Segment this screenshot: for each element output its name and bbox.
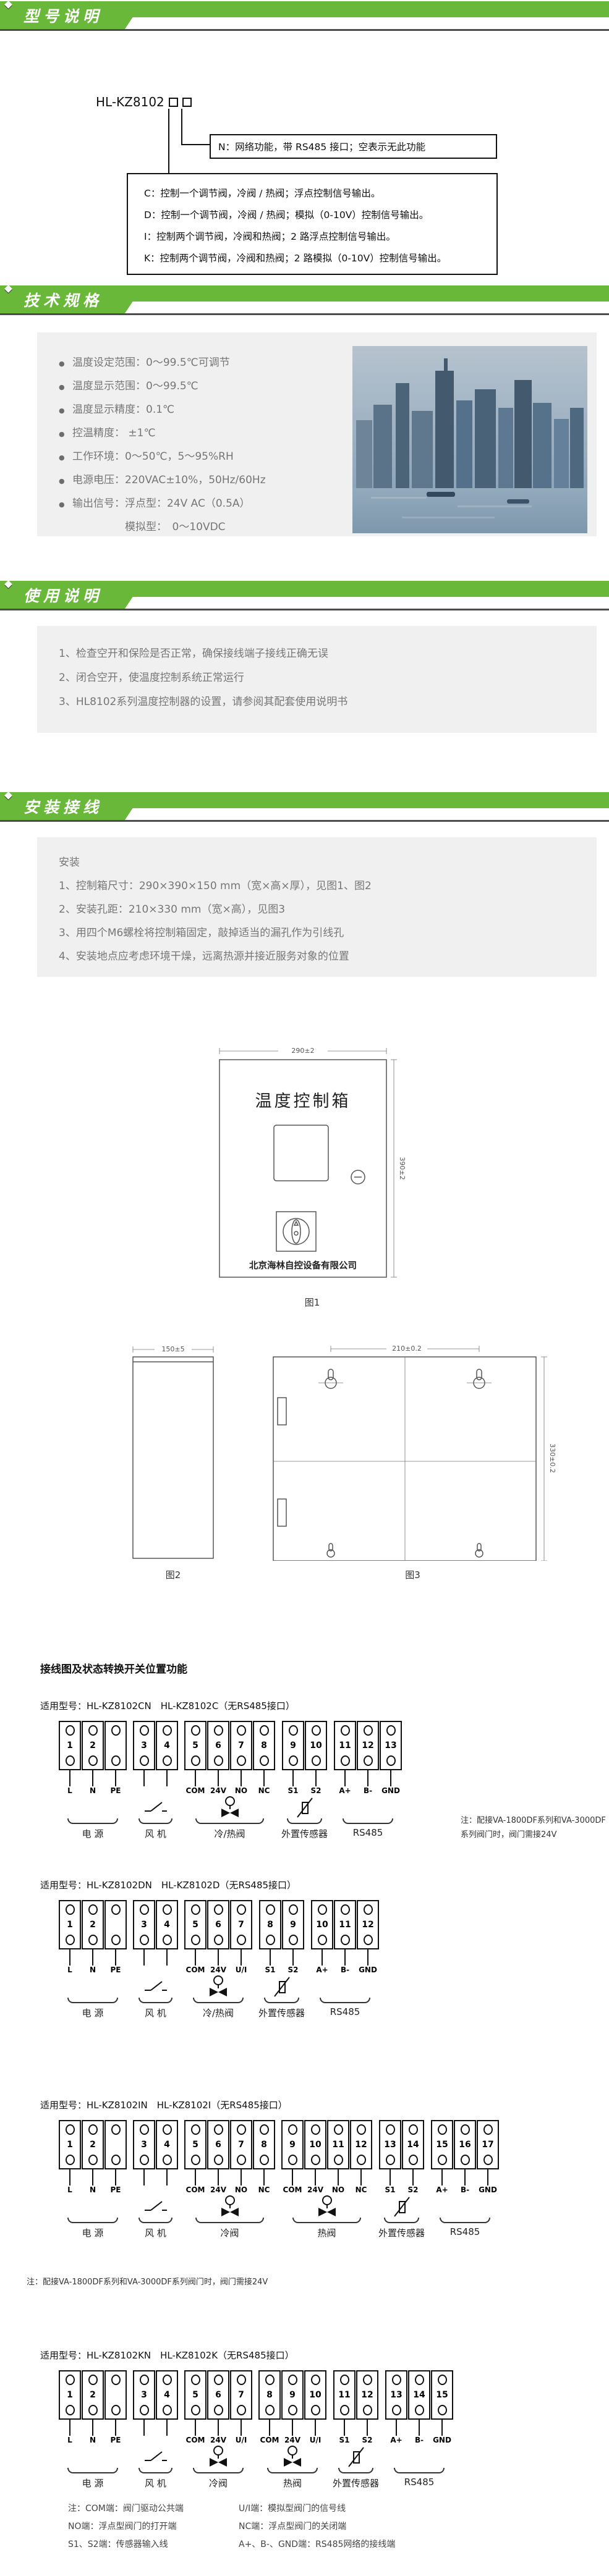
group-bracket — [138, 2218, 172, 2223]
wire-label: NO — [230, 2185, 252, 2195]
screw-hole — [111, 2375, 121, 2385]
terminal-cell: 9 — [281, 2120, 304, 2169]
wire-lead: S2 — [282, 1949, 304, 1975]
terminal-number: 13 — [385, 1741, 396, 1750]
wire-line — [218, 2420, 219, 2436]
terminal-cell: 7 — [230, 2120, 252, 2169]
terminal-cell: 11 — [334, 1721, 356, 1770]
terminal-cell: 13 — [379, 2120, 401, 2169]
terminal-cell: 6 — [207, 2370, 229, 2420]
header-shadow — [0, 820, 609, 822]
screw-hole — [288, 2405, 297, 2415]
spec-text: 电源电压：220VAC±10%，50Hz/60Hz — [72, 471, 266, 486]
wire-lead — [133, 2169, 155, 2195]
screw-hole — [191, 2155, 200, 2165]
wire-lead — [156, 2169, 178, 2195]
screw-hole — [88, 2405, 98, 2415]
screw-hole — [66, 2375, 75, 2385]
screw-hole — [288, 2155, 297, 2165]
terminal-number: 13 — [384, 2140, 396, 2149]
wire-line — [115, 2169, 116, 2185]
terminal-cell: 5 — [184, 1721, 207, 1770]
screw-hole — [191, 2124, 200, 2135]
figure-caption: 图3 — [266, 1568, 560, 1581]
figure-3-back-view: 210±0.2 — [266, 1341, 560, 1581]
screw-hole — [392, 2375, 401, 2385]
terminal-number: 6 — [215, 1741, 221, 1750]
wire-lead: A+ — [431, 2169, 453, 2195]
group-bracket — [320, 1998, 371, 2003]
wire-line — [166, 1949, 168, 1966]
spec-text: 工作环境：0～50℃，5～95%RH — [72, 447, 234, 463]
terminal-number: 13 — [390, 2391, 402, 2399]
wire-label: NO — [327, 2185, 349, 2195]
screw-hole — [409, 2155, 418, 2165]
terminal-number: 9 — [290, 1920, 296, 1929]
spec-text: 输出信号：浮点型：24V AC（0.5A） — [72, 494, 250, 510]
group-bracket — [440, 2218, 491, 2223]
wire-line — [292, 1770, 294, 1786]
wire-lead: 24V — [207, 2420, 229, 2446]
city-skyline-photo — [352, 346, 587, 533]
screw-hole — [66, 1904, 75, 1915]
screw-hole — [237, 1755, 246, 1766]
section-title: 型号说明 — [23, 4, 103, 27]
wire-lead: NC — [253, 2169, 275, 2195]
screw-hole — [438, 2375, 447, 2385]
group-name: 电 源 — [82, 2006, 104, 2019]
wire-line — [69, 1770, 70, 1786]
terminal-number: 16 — [459, 2140, 471, 2149]
wire-lead: PE — [104, 1949, 127, 1975]
screw-hole — [88, 1755, 98, 1766]
terminal-group: 8 9 10 — [258, 2370, 326, 2489]
valve-icon — [219, 1796, 241, 1818]
terminal-number: 4 — [164, 2391, 170, 2399]
group-name: 风 机 — [145, 2226, 166, 2239]
screw-hole — [340, 2375, 349, 2385]
screw-hole — [409, 2124, 418, 2135]
terminal-cell: 6 — [207, 1900, 229, 1949]
terminal-number: 5 — [192, 2140, 198, 2149]
group-name: 冷阀 — [220, 2226, 239, 2239]
group-name: 电 源 — [82, 2477, 104, 2489]
terminal-number: 4 — [164, 2140, 170, 2149]
terminal-number: 6 — [215, 2391, 221, 2399]
wire-label: A+ — [311, 1966, 333, 1975]
wiring-diagram-4: 适用型号：HL-KZ8102KN HL-KZ8102K（无RS485接口） 1 … — [40, 2349, 609, 2489]
wiring-diagram-3: 适用型号：HL-KZ8102IN HL-KZ8102I（无RS485接口） 1 … — [40, 2098, 609, 2289]
terminal-group: 13 14 S1 — [378, 2120, 425, 2239]
group-bracket — [195, 1818, 263, 1824]
terminal-number: 9 — [289, 2391, 296, 2399]
screw-hole — [88, 1904, 98, 1915]
wire-lead: L — [59, 2169, 81, 2195]
screw-hole — [364, 1725, 373, 1736]
screw-hole — [163, 2375, 172, 2385]
screw-hole — [214, 1755, 223, 1766]
wire-label: A+ — [385, 2436, 407, 2446]
terminal-cell: 11 — [334, 1900, 356, 1949]
wire-line — [367, 2420, 368, 2436]
screw-hole — [311, 2375, 320, 2385]
wire-line — [344, 1770, 346, 1786]
terminal-number: 14 — [413, 2391, 425, 2399]
wire-line — [143, 2420, 145, 2436]
wire-label: NC — [350, 2185, 372, 2195]
screw-hole — [237, 1725, 246, 1736]
terminal-number: 6 — [215, 1920, 221, 1929]
wire-line — [69, 2169, 70, 2185]
wire-label: S2 — [282, 1966, 304, 1975]
screw-hole — [111, 2155, 121, 2165]
group-name: 电 源 — [82, 2226, 104, 2239]
screw-hole — [237, 2405, 246, 2415]
terminal-group: 1 2 — [59, 2120, 127, 2239]
screw-hole — [237, 2155, 246, 2165]
wire-lead: N — [82, 1770, 104, 1796]
terminal-group: 8 9 S1 — [258, 1900, 305, 2019]
terminal-cell: 4 — [156, 2120, 178, 2169]
screw-hole — [341, 1904, 350, 1915]
terminal-cell: 3 — [133, 1721, 155, 1770]
terminal-cell: 4 — [156, 1900, 178, 1949]
wire-label: 24V — [207, 2185, 229, 2195]
wire-line — [166, 2169, 168, 2185]
wire-lead: N — [82, 2420, 104, 2446]
valve-options-box: C：控制一个调节阀，冷阀 / 热阀；浮点控制信号输出。D：控制一个调节阀，冷阀 … — [127, 173, 498, 275]
group-name: 电 源 — [82, 1827, 104, 1840]
terminal-number: 10 — [316, 1920, 328, 1929]
screw-hole — [214, 1904, 223, 1915]
wire-line — [390, 2169, 391, 2185]
terminal-group: 15 16 17 — [431, 2120, 499, 2237]
group-bracket — [343, 1818, 394, 1824]
wire-line — [412, 2169, 414, 2185]
screw-hole — [88, 2375, 98, 2385]
terminal-cell: 1 — [59, 2370, 81, 2420]
connector-line — [168, 109, 169, 174]
wire-lead: S1 — [259, 1949, 281, 1975]
terminal-number: 12 — [362, 1741, 373, 1750]
terminal-number: 9 — [289, 2140, 296, 2149]
wire-line — [367, 1949, 368, 1966]
wire-label: B- — [454, 2185, 476, 2195]
valve-option-line: K：控制两个调节阀，冷阀和热阀；2 路模拟（0-10V）控制信号输出。 — [144, 248, 496, 269]
wire-line — [263, 1770, 265, 1786]
applicable-models: 适用型号：HL-KZ8102KN HL-KZ8102K（无RS485接口） — [40, 2349, 609, 2362]
group-bracket — [264, 1998, 299, 2003]
terminal-cell: 8 — [253, 1721, 275, 1770]
wire-label: L — [59, 1786, 81, 1796]
screw-hole — [260, 2124, 269, 2135]
wire-line — [218, 1949, 219, 1966]
screw-hole — [386, 1755, 396, 1766]
keyhole-slot — [467, 1369, 492, 1388]
model-option-square-2 — [182, 98, 192, 107]
wire-label: 24V — [207, 1786, 229, 1796]
wire-line — [143, 1770, 145, 1786]
section-title: 安装接线 — [23, 795, 103, 817]
install-item: 3、用四个M6螺栓将控制箱固定，敲掉适当的漏孔作为引线孔 — [59, 924, 597, 947]
usage-item: 2、闭合空开，使温度控制系统正常运行 — [59, 669, 597, 693]
header-badge: 安装接线 — [0, 792, 143, 820]
screw-hole — [364, 1755, 373, 1766]
wire-lead: PE — [104, 2420, 127, 2446]
screw-hole — [312, 1755, 321, 1766]
screw-hole — [163, 1725, 172, 1736]
wire-label — [133, 2185, 155, 2195]
terminal-group: 13 14 15 — [385, 2370, 453, 2488]
screw-hole — [140, 2124, 149, 2135]
terminal-cell: 2 — [82, 1900, 104, 1949]
screw-hole — [334, 2155, 343, 2165]
group-bracket — [67, 2218, 119, 2223]
terminal-number: 11 — [339, 1920, 351, 1929]
wire-lead: 24V — [281, 2420, 304, 2446]
bullet-icon: ● — [59, 500, 72, 509]
wire-label: S1 — [333, 2436, 356, 2446]
screw-hole — [88, 1725, 98, 1736]
terminal-group: 11 12 13 — [334, 1721, 402, 1838]
wire-label: COM — [258, 2436, 281, 2446]
terminal-cell — [104, 1900, 127, 1949]
terminal-cell: 10 — [305, 1721, 327, 1770]
wire-label: S2 — [305, 1786, 327, 1796]
wire-lead: GND — [477, 2169, 499, 2195]
wire-line — [322, 1949, 323, 1966]
valve-option-line: D：控制一个调节阀，冷阀 / 热阀；模拟（0-10V）控制信号输出。 — [144, 205, 496, 226]
terminal-group: 5 6 7 — [184, 2370, 252, 2489]
fig2-width-dimension: 150±5 — [161, 1345, 184, 1353]
section-title: 使用说明 — [23, 584, 103, 606]
terminal-cell: 7 — [230, 1721, 252, 1770]
model-code-diagram: HL-KZ8102 N：网络功能，带 RS485 接口；空表示无此功能 C：控制… — [0, 31, 609, 284]
group-name: 外置传感器 — [378, 2226, 425, 2239]
screw-hole — [289, 1755, 298, 1766]
valve-icon — [207, 1975, 229, 1998]
terminal-cell: 10 — [304, 2370, 326, 2420]
terminal-number: 12 — [361, 2391, 373, 2399]
wire-line — [292, 2420, 293, 2436]
fig1-company-name: 北京海林自控设备有限公司 — [249, 1260, 357, 1271]
wire-line — [241, 1949, 242, 1966]
wire-line — [464, 2169, 466, 2185]
terminal-number: 1 — [67, 1920, 73, 1929]
wire-lead: 24V — [207, 1949, 229, 1975]
wire-line — [143, 2169, 145, 2185]
terminal-number: 10 — [310, 1741, 322, 1750]
terminal-group: 9 10 S1 — [281, 1721, 328, 1840]
sensor-icon — [393, 2195, 411, 2218]
wire-label — [156, 1786, 178, 1796]
wire-label: L — [59, 1966, 81, 1975]
control-box-side-drawing: 150±5 — [127, 1341, 219, 1561]
terminal-cell: 9 — [282, 1721, 304, 1770]
screw-hole — [415, 2375, 424, 2385]
wire-label: B- — [408, 2436, 430, 2446]
wire-label: NC — [253, 2185, 275, 2195]
terminal-cell: 3 — [133, 1900, 155, 1949]
keyhole-slot — [327, 1543, 334, 1557]
terminal-cell: 14 — [408, 2370, 430, 2420]
wire-lead: 24V — [304, 2169, 326, 2195]
wire-lead: S2 — [402, 2169, 424, 2195]
screw-hole — [363, 2375, 372, 2385]
terminal-cell — [104, 2370, 127, 2420]
terminal-number: 9 — [290, 1741, 296, 1750]
bullet-icon: ● — [59, 407, 72, 415]
wire-label: A+ — [431, 2185, 453, 2195]
group-bracket — [338, 2468, 373, 2473]
screw-hole — [363, 2405, 372, 2415]
terminal-cell: 3 — [133, 2120, 155, 2169]
wire-lead — [133, 1949, 155, 1975]
spec-text: 温度显示范围：0～99.5℃ — [72, 377, 198, 392]
screw-hole — [140, 2155, 149, 2165]
terminal-cell: 14 — [402, 2120, 424, 2169]
wire-lead: NO — [327, 2169, 349, 2195]
screw-hole — [140, 1935, 149, 1945]
wire-lead: S2 — [356, 2420, 378, 2446]
applicable-models: 适用型号：HL-KZ8102DN HL-KZ8102D（无RS485接口） — [40, 1878, 609, 1891]
group-name: RS485 — [450, 2226, 480, 2237]
wire-line — [195, 2169, 196, 2185]
screw-hole — [163, 2405, 172, 2415]
terminal-group: 9 10 11 — [281, 2120, 372, 2239]
wire-lead: 24V — [207, 2169, 229, 2195]
screw-hole — [260, 1725, 269, 1736]
usage-item: 3、HL8102系列温度控制器的设置，请参阅其配套使用说明书 — [59, 693, 597, 717]
wire-label: COM — [184, 2436, 207, 2446]
install-list: 1、控制箱尺寸：290×390×150 mm（宽×高×厚），见图1、图22、安装… — [59, 877, 597, 971]
spec-text: 模拟型： 0～10VDC — [72, 518, 226, 533]
screw-hole — [289, 1725, 298, 1736]
wire-line — [241, 2169, 242, 2185]
wire-line — [396, 2420, 397, 2436]
wire-lead: COM — [184, 2169, 207, 2195]
screw-hole — [191, 1725, 200, 1736]
valve-option-line: C：控制一个调节阀，冷阀 / 热阀；浮点控制信号输出。 — [144, 183, 496, 205]
wire-line — [195, 1949, 196, 1966]
wire-label: PE — [104, 1786, 127, 1796]
terminal-number: 11 — [339, 1741, 351, 1750]
terminal-number: 4 — [164, 1741, 170, 1750]
screw-hole — [386, 2155, 395, 2165]
model-code: HL-KZ8102 — [96, 95, 192, 109]
terminal-group: 10 11 12 — [311, 1900, 379, 2017]
screw-hole — [140, 1755, 149, 1766]
screw-hole — [111, 1725, 121, 1736]
screw-hole — [438, 2405, 447, 2415]
terminal-number: 5 — [192, 2391, 198, 2399]
wiring-diagram-1: 适用型号：HL-KZ8102CN HL-KZ8102C（无RS485接口） 1 … — [40, 1699, 609, 1840]
terminal-cell: 2 — [82, 2370, 104, 2420]
terminal-number: 12 — [355, 2140, 367, 2149]
wire-lead: A+ — [334, 1770, 356, 1796]
wire-lead — [156, 1770, 178, 1796]
terminal-number: 8 — [261, 1741, 267, 1750]
wire-lead: COM — [258, 2420, 281, 2446]
wire-line — [143, 1949, 145, 1966]
terminal-cell: 2 — [82, 1721, 104, 1770]
screw-hole — [163, 1755, 172, 1766]
terminal-number: 5 — [192, 1920, 198, 1929]
terminal-cell: 1 — [59, 1900, 81, 1949]
sensor-icon — [296, 1796, 314, 1818]
wire-label: S1 — [259, 1966, 281, 1975]
terminal-cell: 6 — [207, 1721, 229, 1770]
terminal-block: 1 2 — [59, 1900, 609, 2019]
wire-lead: GND — [380, 1770, 402, 1796]
wire-line — [263, 2169, 265, 2185]
group-name: 外置传感器 — [333, 2477, 379, 2489]
wire-lead: A+ — [385, 2420, 407, 2446]
wire-lead: COM — [281, 2169, 304, 2195]
figures-2-3-row: 150±5 图2 210±0.2 — [127, 1341, 609, 1581]
screw-hole — [237, 2124, 246, 2135]
screw-hole — [140, 2405, 149, 2415]
wire-line — [390, 1770, 391, 1786]
knockout-hole — [278, 1499, 286, 1526]
valve-icon — [219, 2195, 241, 2218]
wire-label: COM — [184, 1786, 207, 1796]
screw-hole — [312, 1725, 321, 1736]
terminal-cell: 10 — [304, 2120, 326, 2169]
wire-line — [166, 2420, 168, 2436]
terminal-number: 2 — [90, 1741, 96, 1750]
header-badge: 技术规格 — [0, 285, 143, 313]
wire-lead — [133, 1770, 155, 1796]
display-window — [274, 1125, 328, 1181]
wire-line — [315, 2169, 316, 2185]
wiring-diagram-2: 适用型号：HL-KZ8102DN HL-KZ8102D（无RS485接口） 1 … — [40, 1878, 609, 2019]
terminal-cell: 13 — [380, 1721, 402, 1770]
wire-lead: NO — [230, 2169, 252, 2195]
screw-hole — [415, 2405, 424, 2415]
terminal-cell: 2 — [82, 2120, 104, 2169]
terminal-cell: 5 — [184, 2120, 207, 2169]
terminal-cell: 12 — [357, 1721, 379, 1770]
terminal-cell: 6 — [207, 2120, 229, 2169]
terminal-cell: 16 — [454, 2120, 476, 2169]
wire-label: 24V — [304, 2185, 326, 2195]
screw-hole — [392, 2405, 401, 2415]
fan-switch-icon — [143, 2199, 168, 2214]
terminal-group: 3 4 — [133, 2120, 178, 2239]
wire-label: B- — [357, 1786, 379, 1796]
terminal-cell: 3 — [133, 2370, 155, 2420]
wire-label: GND — [431, 2436, 453, 2446]
specs-panel: ● 温度设定范围：0～99.5℃可调节 ● 温度显示范围：0～99.5℃ ● 温… — [37, 332, 597, 536]
screw-hole — [260, 2155, 269, 2165]
wire-label: L — [59, 2185, 81, 2195]
knockout-hole — [278, 1398, 286, 1425]
fig1-panel-title: 温度控制箱 — [255, 1092, 351, 1111]
terminal-number: 10 — [309, 2140, 321, 2149]
fig3-width-dimension: 210±0.2 — [392, 1345, 422, 1353]
terminal-number: 8 — [267, 1920, 273, 1929]
wire-line — [92, 2169, 93, 2185]
screw-hole — [266, 1935, 275, 1945]
terminal-block: 1 2 — [59, 2120, 609, 2239]
fan-switch-icon — [143, 2449, 168, 2464]
wire-lead: S1 — [282, 1770, 304, 1796]
terminal-number: 12 — [362, 1920, 373, 1929]
screw-hole — [214, 2405, 223, 2415]
group-name: 冷/热阀 — [203, 2006, 234, 2019]
group-bracket — [67, 2468, 119, 2473]
